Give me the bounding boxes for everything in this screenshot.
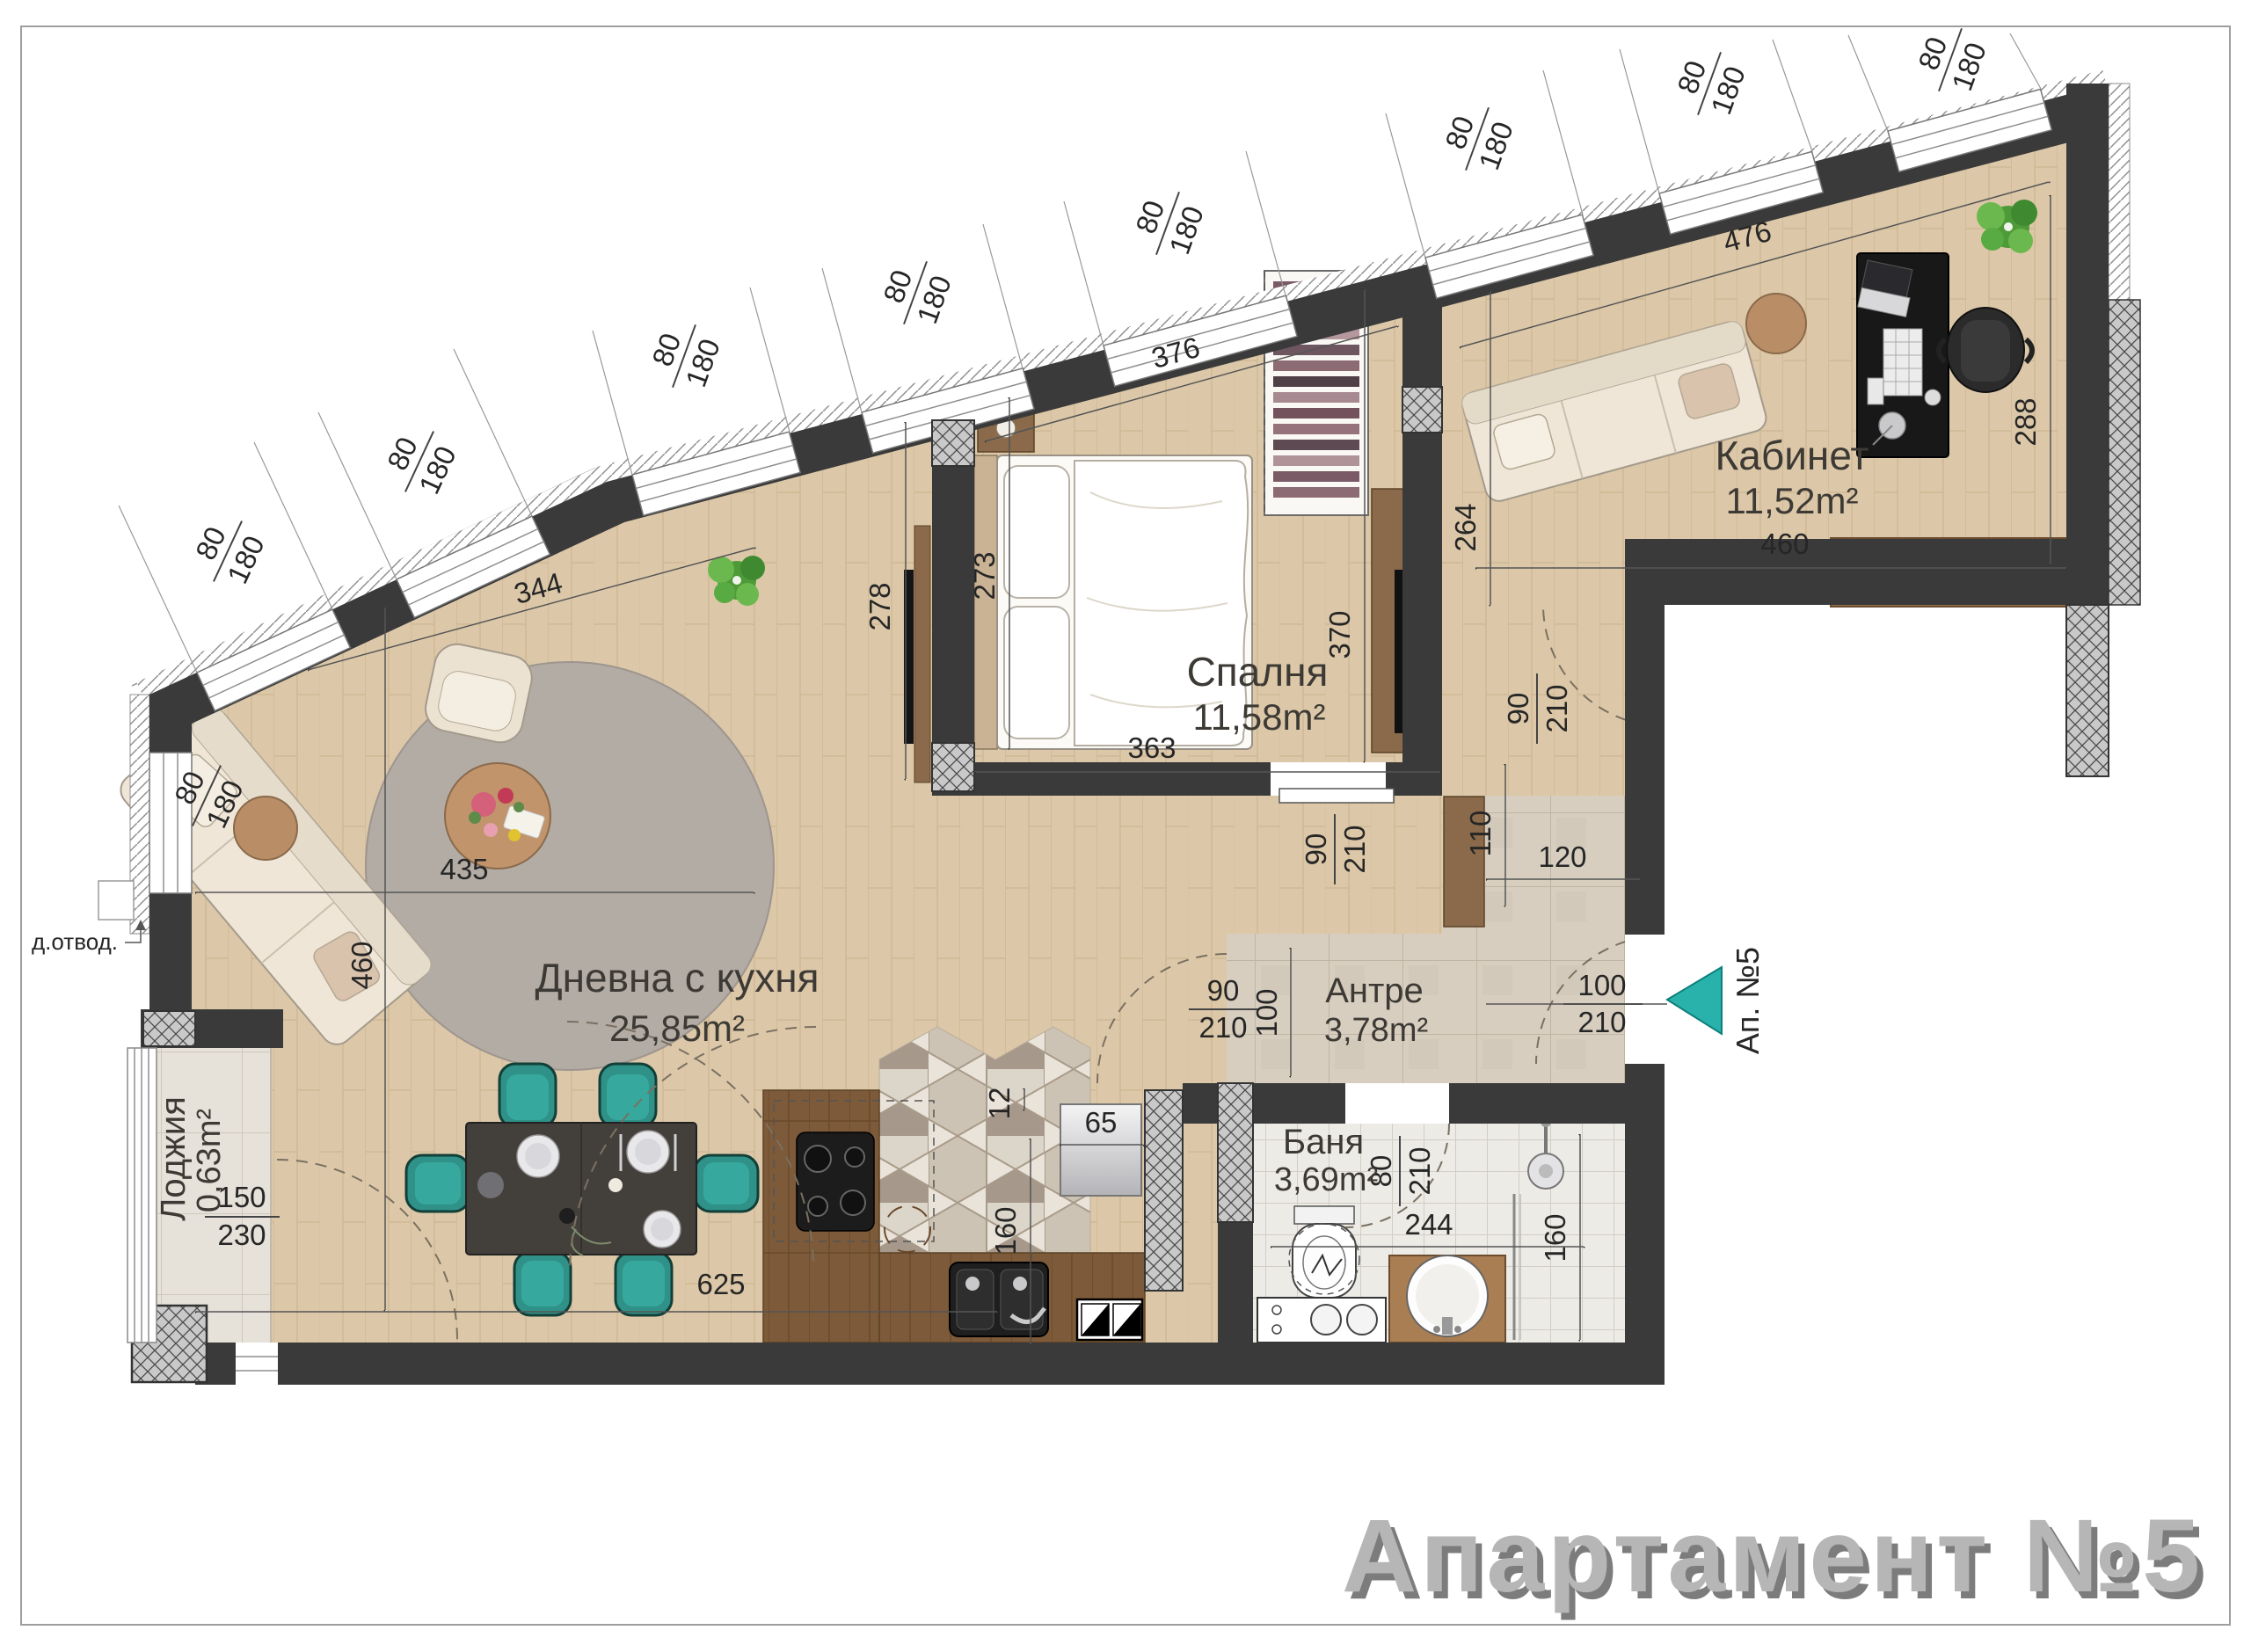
drain-label: д.отвод.	[32, 928, 118, 955]
svg-text:90: 90	[1502, 693, 1534, 725]
svg-text:210: 210	[1403, 1146, 1436, 1195]
pillow	[1004, 466, 1069, 598]
side-table	[234, 797, 297, 860]
dining-chair	[600, 1064, 656, 1127]
dim-kitchen-top: 65	[1085, 1106, 1118, 1139]
svg-text:210: 210	[1338, 825, 1371, 873]
bedroom-right-wall	[1402, 299, 1442, 796]
dim-living-depth: 460	[346, 941, 378, 989]
shaft-below-office	[2066, 605, 2109, 776]
plan-title-text: Апартамент №5	[1342, 1498, 2204, 1614]
office-bottom-wall	[1665, 539, 2066, 605]
shaft-loggia-top	[143, 1011, 195, 1046]
dim-hall-pass: 100	[1250, 988, 1283, 1037]
bottom-wall	[195, 1343, 1665, 1385]
bath-area: 3,69m²	[1274, 1161, 1378, 1198]
svg-text:210: 210	[1541, 684, 1573, 732]
plant-office	[1977, 200, 2037, 253]
corridor-right-wall-upper	[1625, 539, 1665, 935]
bath-door-opening	[1345, 1083, 1449, 1124]
corridor-right-wall-lower	[1625, 1064, 1665, 1385]
bedroom-name: Спалня	[1187, 649, 1329, 695]
dim-bedroom-side: 273	[968, 551, 1001, 600]
living-area: 25,85m²	[609, 1008, 745, 1049]
desk	[1857, 253, 1949, 457]
svg-text:100: 100	[1577, 969, 1626, 1001]
vent-symbol	[1077, 1299, 1142, 1340]
entrance-label: Ап. №5	[1730, 947, 1766, 1054]
loggia-name: Лоджия	[154, 1096, 193, 1221]
bedroom-bottom-wall	[974, 762, 1271, 796]
drain-box	[98, 881, 134, 920]
dim-living-tvwall: 278	[863, 582, 896, 630]
bath-left-wall	[1218, 1222, 1253, 1343]
kitchen-hex-floor	[879, 1027, 1090, 1253]
svg-text:90: 90	[1207, 974, 1240, 1007]
dim-bath-width: 244	[1404, 1208, 1453, 1241]
shaft-bedroom-right-wall	[1402, 387, 1442, 433]
entry-door-opening	[1625, 935, 1665, 1064]
bath-name: Баня	[1283, 1123, 1364, 1161]
toilet	[1289, 1206, 1359, 1298]
svg-text:210: 210	[1577, 1006, 1626, 1038]
dim-bedroom-width: 363	[1127, 731, 1176, 764]
shaft-office-right	[2109, 300, 2140, 605]
dim-loggia-door-h: 230	[217, 1219, 266, 1251]
hall-name: Антре	[1325, 972, 1424, 1010]
bedroom-area: 11,58m²	[1193, 696, 1326, 738]
dining-chair	[499, 1064, 556, 1127]
dining-chair	[695, 1155, 758, 1212]
dim-bath-side: 160	[1539, 1213, 1571, 1262]
dining-chair	[406, 1155, 470, 1212]
svg-text:210: 210	[1198, 1011, 1247, 1044]
dim-office-bottom: 460	[1760, 528, 1809, 560]
dim-hall-width: 120	[1538, 841, 1586, 873]
kitchen-sink	[950, 1263, 1048, 1336]
dim-living-bottom: 625	[696, 1268, 745, 1300]
living-name: Дневна с кухня	[535, 955, 819, 1001]
shaft-bath	[1218, 1083, 1253, 1222]
plan-title: Апартамент №5 Апартамент №5	[1342, 1498, 2210, 1621]
shaft-bedroom-wall-bottom	[932, 743, 974, 791]
office-name: Кабинет	[1716, 433, 1869, 478]
bedroom-sliding-door-panel	[1279, 789, 1394, 803]
shaft-kitchen	[1145, 1090, 1183, 1291]
dining-chair	[616, 1252, 672, 1315]
dim-hall-niche: 110	[1464, 811, 1497, 857]
dining-chair	[514, 1252, 571, 1315]
right-wall-insulation	[2109, 84, 2130, 300]
loggia-railing	[127, 1048, 157, 1343]
loggia-area: 0,63m²	[191, 1109, 228, 1212]
dim-living-width: 435	[440, 853, 488, 885]
dim-corridor: 264	[1449, 503, 1482, 551]
dim-bedroom-depth: 370	[1323, 610, 1356, 659]
floorplan-svg: 80180 80180 80180 80180 80180 80180 8018…	[0, 0, 2251, 1652]
pillow	[1004, 607, 1069, 739]
desk-mouse	[1925, 389, 1941, 405]
dim-office-side: 288	[2009, 397, 2042, 446]
dining-table	[466, 1123, 696, 1255]
washing-machine	[1257, 1298, 1386, 1343]
bathroom-sink	[1389, 1255, 1505, 1343]
dim-kitchen-side: 160	[989, 1206, 1022, 1255]
shaft-bedroom-wall-top	[932, 420, 974, 466]
tv-console-living	[914, 526, 930, 782]
loggia-door-opening	[236, 1343, 278, 1385]
hall-area: 3,78m²	[1324, 1012, 1428, 1049]
svg-text:90: 90	[1300, 833, 1332, 866]
bedroom-left-wall	[932, 413, 974, 796]
dim-kitchen-gap: 12	[983, 1088, 1016, 1120]
office-area: 11,52m²	[1726, 480, 1859, 521]
right-wall	[2066, 84, 2109, 605]
office-side-table	[1746, 294, 1806, 353]
